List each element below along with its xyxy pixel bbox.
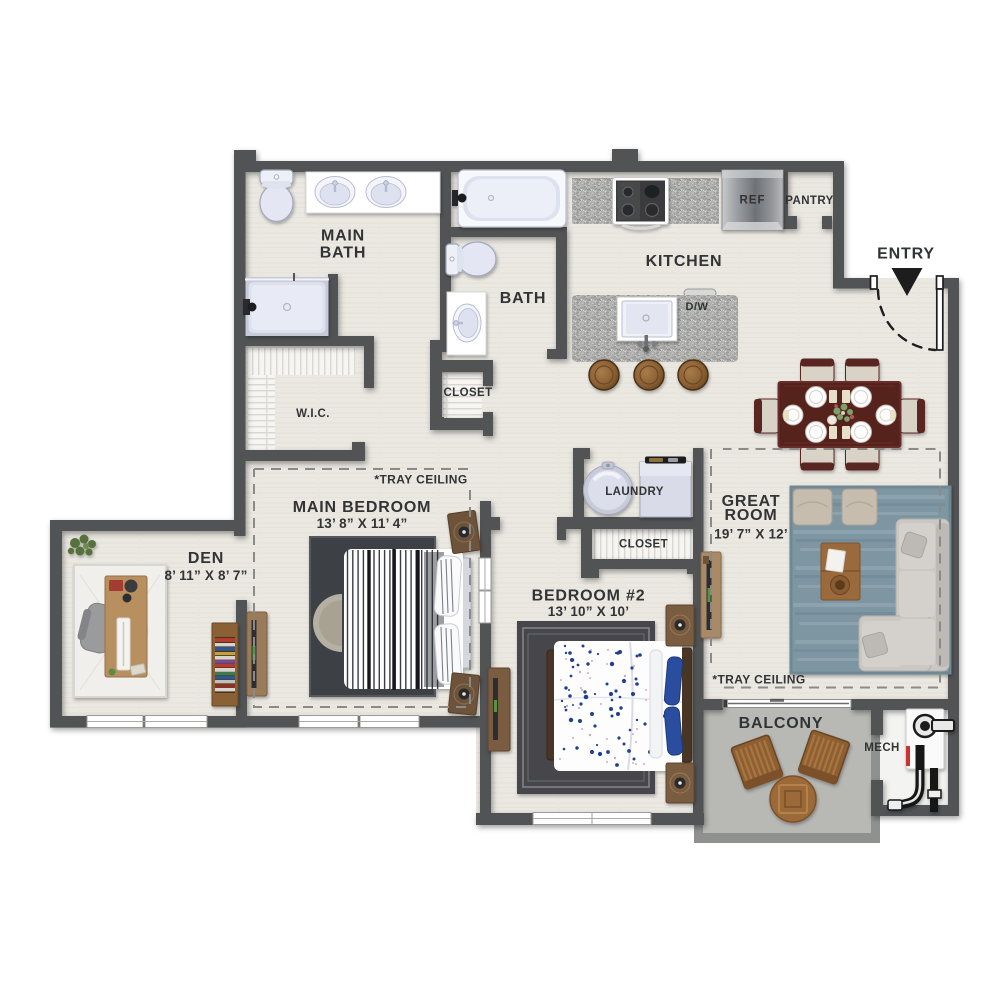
svg-text:BATH: BATH bbox=[320, 245, 366, 262]
svg-text:*TRAY CEILING: *TRAY CEILING bbox=[374, 472, 467, 486]
svg-text:8’ 11” X 8’ 7”: 8’ 11” X 8’ 7” bbox=[164, 568, 247, 583]
svg-text:13’ 8” X 11’ 4”: 13’ 8” X 11’ 4” bbox=[317, 516, 408, 531]
svg-text:ENTRY: ENTRY bbox=[877, 246, 935, 263]
svg-text:MAIN: MAIN bbox=[321, 228, 365, 245]
svg-text:REF: REF bbox=[740, 195, 766, 207]
svg-text:MAIN BEDROOM: MAIN BEDROOM bbox=[293, 499, 431, 516]
svg-text:MECH: MECH bbox=[864, 742, 899, 754]
svg-text:ROOM: ROOM bbox=[725, 507, 778, 524]
svg-text:CLOSET: CLOSET bbox=[443, 387, 492, 399]
svg-text:DEN: DEN bbox=[188, 550, 224, 567]
svg-text:KITCHEN: KITCHEN bbox=[646, 253, 723, 270]
svg-text:*TRAY CEILING: *TRAY CEILING bbox=[712, 673, 805, 687]
svg-text:W.I.C.: W.I.C. bbox=[296, 408, 330, 420]
svg-text:BEDROOM #2: BEDROOM #2 bbox=[532, 588, 646, 605]
svg-text:BATH: BATH bbox=[500, 290, 546, 307]
svg-text:19’ 7” X 12’: 19’ 7” X 12’ bbox=[714, 526, 788, 541]
svg-text:D/W: D/W bbox=[686, 301, 709, 313]
svg-text:PANTRY: PANTRY bbox=[785, 195, 833, 207]
svg-text:BALCONY: BALCONY bbox=[739, 715, 824, 732]
svg-text:CLOSET: CLOSET bbox=[619, 539, 668, 551]
svg-text:13’ 10” X 10’: 13’ 10” X 10’ bbox=[548, 604, 629, 619]
svg-text:LAUNDRY: LAUNDRY bbox=[605, 486, 664, 498]
